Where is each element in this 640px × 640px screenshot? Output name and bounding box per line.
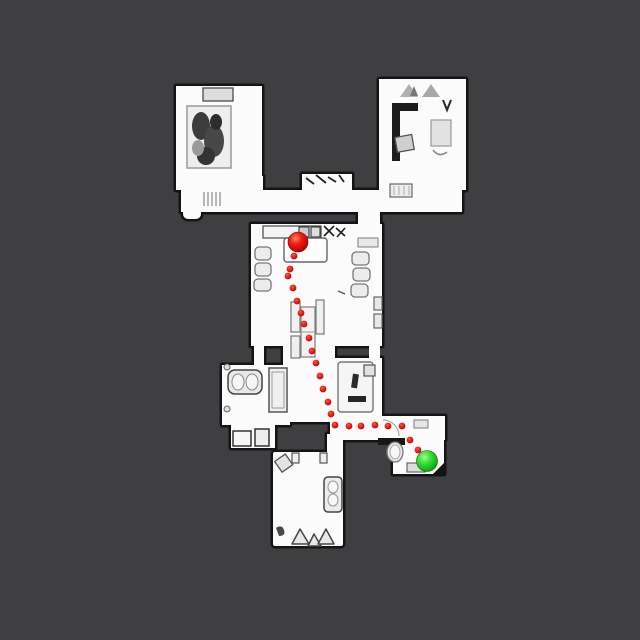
path-dot	[287, 266, 294, 273]
dresser-icon	[203, 88, 233, 101]
goal-marker	[417, 451, 438, 472]
closet-lower-2	[255, 429, 269, 446]
door-bedroom	[369, 342, 380, 362]
path-dot	[415, 447, 422, 454]
path-dot	[298, 310, 305, 317]
chair-top-right	[431, 120, 451, 146]
path-dot	[313, 360, 320, 367]
path-dot	[407, 437, 414, 444]
closet-bump-2	[374, 314, 382, 328]
cabinet-icon	[414, 420, 428, 428]
path-dot	[285, 273, 292, 280]
path-dot	[346, 423, 353, 430]
chairs-right	[351, 252, 370, 297]
closet-lower-1	[233, 431, 251, 446]
chairs-left	[254, 247, 271, 291]
path-dot	[332, 422, 339, 429]
toilet-bowl	[390, 445, 400, 459]
sideboard	[358, 238, 378, 247]
path-dot	[328, 411, 335, 418]
closet-bump-1	[374, 297, 382, 310]
path-dot	[306, 335, 313, 342]
path-dot	[320, 386, 327, 393]
fixture-dot-1	[224, 364, 230, 370]
path-dot	[290, 285, 297, 292]
path-dot	[372, 422, 379, 429]
radiator-bottom	[324, 477, 342, 512]
fixture-dot-2	[224, 406, 230, 412]
box-icon	[395, 135, 414, 153]
sink-icon	[311, 227, 320, 237]
door-frame-2	[320, 453, 327, 463]
path-dot	[294, 298, 301, 305]
door-top-left-room	[197, 182, 229, 196]
path-dot	[301, 321, 308, 328]
bed-top-left	[187, 106, 231, 168]
map-viewport	[0, 0, 640, 640]
start-marker	[288, 232, 308, 252]
path-dot	[317, 373, 324, 380]
path-dot	[325, 399, 332, 406]
bathtub-icon	[228, 370, 262, 394]
bed-right	[338, 362, 375, 412]
door-frame-1	[292, 453, 299, 463]
path-dot	[399, 423, 406, 430]
path-dot	[358, 423, 365, 430]
path-dot	[291, 253, 298, 260]
path-dot	[385, 423, 392, 430]
map-canvas[interactable]	[0, 0, 640, 640]
path-dot	[309, 348, 316, 355]
